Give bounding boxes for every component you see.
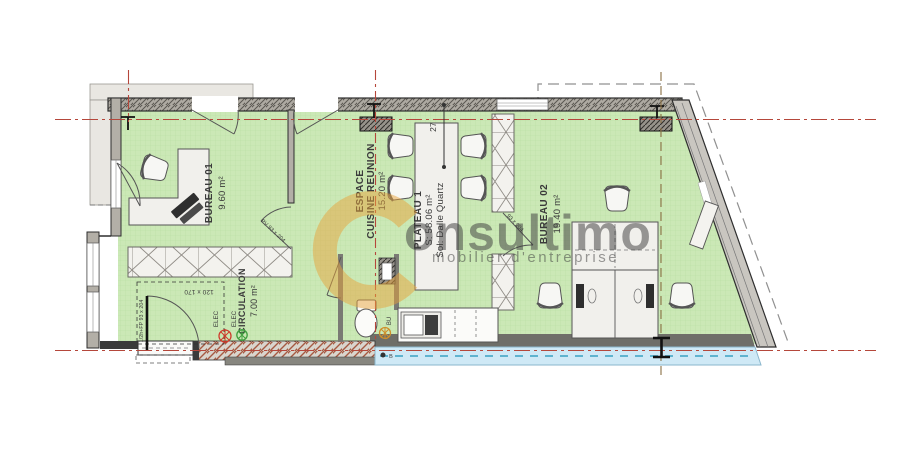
room-name: CIRCULATION xyxy=(237,268,247,334)
door-frame-label: 120 x 170 xyxy=(184,288,214,295)
facade-marker-label: B xyxy=(389,354,393,360)
dimension-label: 27 xyxy=(428,122,438,132)
floor-plan-page: BUREAU 01 9.60 m² ESPACE CUISINE REUNION… xyxy=(0,0,900,460)
wardrobe-unit xyxy=(128,247,292,277)
cabinet-partition-upper xyxy=(492,114,514,212)
room-name: BUREAU 01 xyxy=(204,163,215,223)
elec-label: ELEC xyxy=(231,310,238,327)
monitor xyxy=(646,284,654,308)
kitchen-counter xyxy=(398,308,498,342)
bu-label: BU xyxy=(387,317,393,325)
monitor xyxy=(576,284,584,308)
watermark-tagline: mobilier d'entreprise xyxy=(432,249,619,266)
door-opening xyxy=(192,96,238,112)
room-area: 7.00 m² xyxy=(249,285,259,317)
floor-plan-drawing: BUREAU 01 9.60 m² ESPACE CUISINE REUNION… xyxy=(0,0,900,460)
partition-bureau01 xyxy=(288,110,294,203)
elec-label: ELEC xyxy=(213,310,220,327)
room-area: 9.60 m² xyxy=(217,176,228,210)
entrance-door-label: 1/2h+FP 93 x 204 xyxy=(139,300,145,343)
top-window xyxy=(497,99,548,110)
door-opening xyxy=(295,96,338,112)
